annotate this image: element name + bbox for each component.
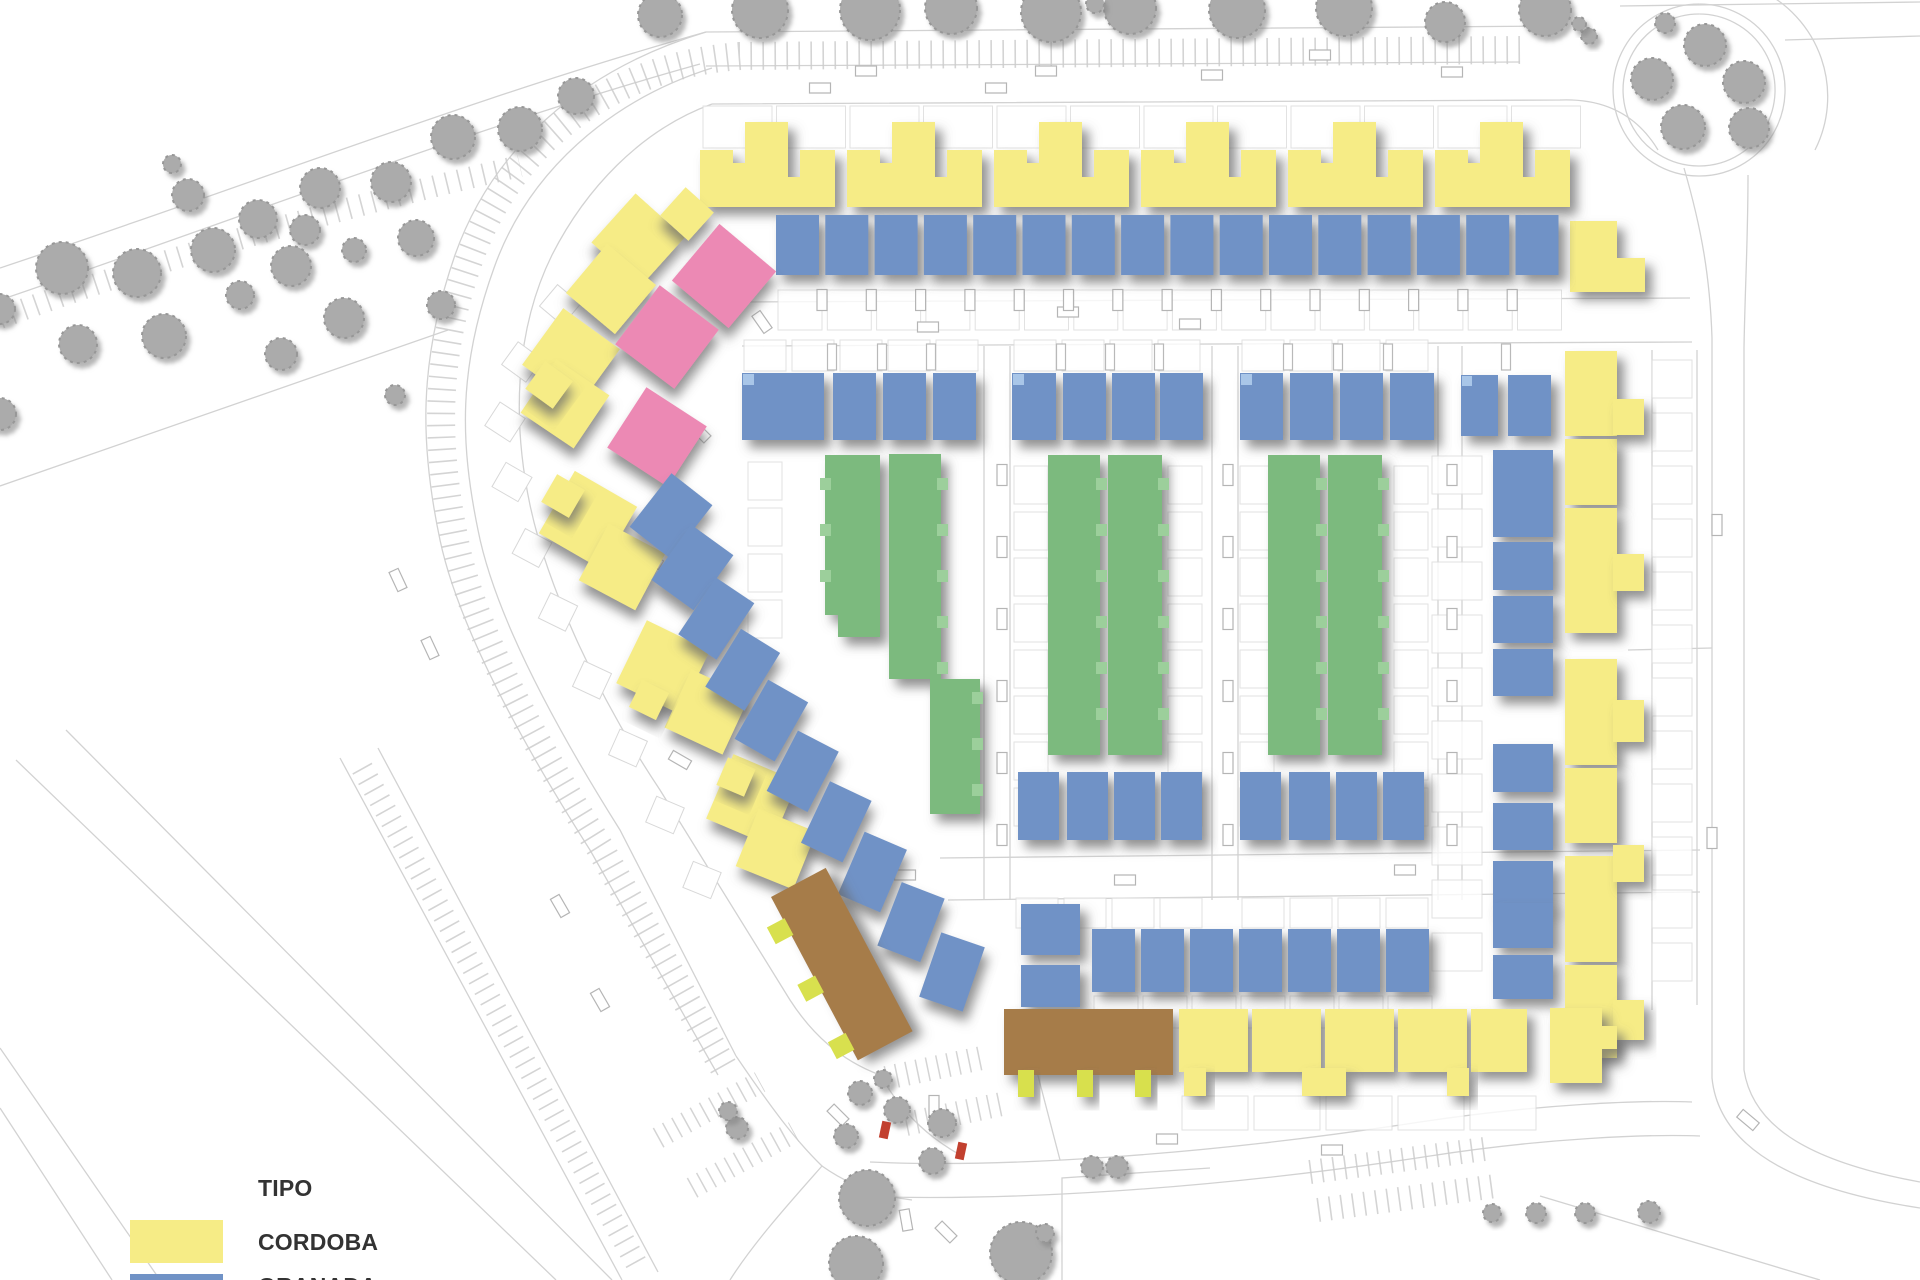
svg-text:CORDOBA: CORDOBA <box>258 1229 378 1255</box>
svg-text:TIPO: TIPO <box>258 1175 312 1201</box>
svg-text:GRANADA: GRANADA <box>258 1273 377 1280</box>
